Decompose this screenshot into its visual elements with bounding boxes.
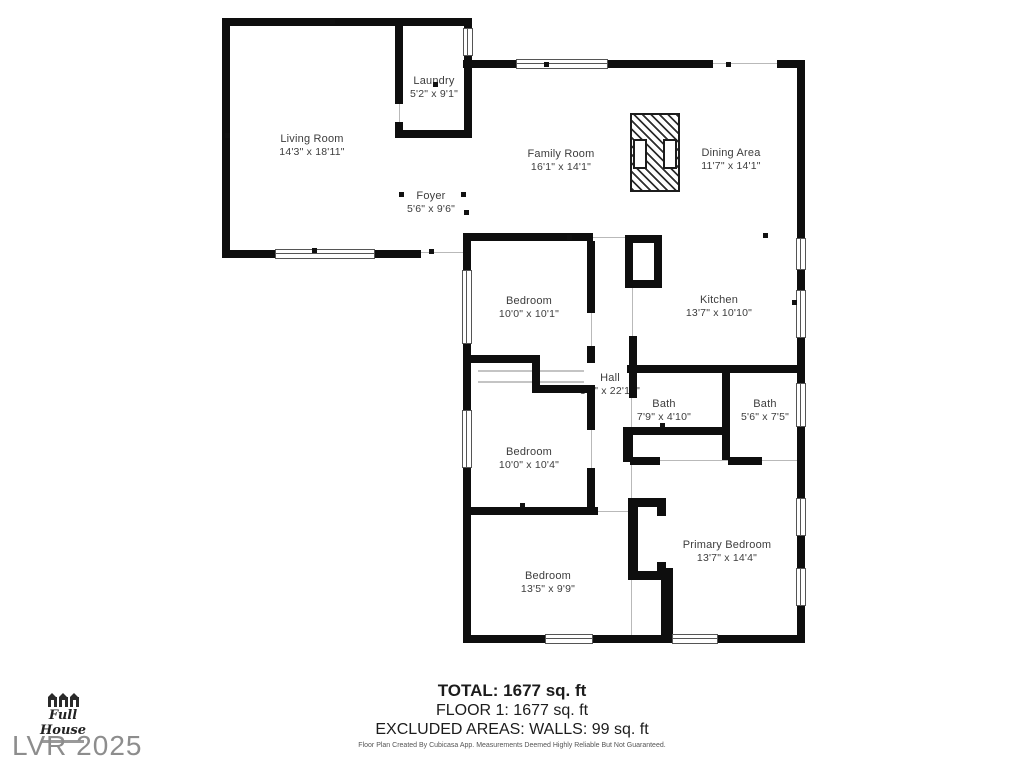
wall: [797, 425, 805, 500]
room-dims: 5'6" x 7'5": [741, 411, 789, 424]
opening-line-bath2-door: [762, 460, 797, 461]
opening-line-front-door: [421, 252, 463, 253]
total-area-text: TOTAL: 1677 sq. ft: [0, 681, 1024, 701]
wall: [630, 427, 723, 435]
room-name: Family Room: [528, 148, 595, 161]
room-label-dining-area: Dining Area 11'7" x 14'1": [701, 147, 760, 173]
closet-shelf-line: [478, 381, 584, 383]
wall: [627, 365, 805, 373]
wall: [630, 457, 660, 465]
house-icon: [70, 697, 79, 707]
wall: [532, 385, 593, 393]
door-tick: [429, 249, 434, 254]
door-tick: [399, 192, 404, 197]
window: [796, 383, 806, 427]
room-label-laundry: Laundry 5'2" x 9'1": [410, 75, 458, 101]
summary-block: TOTAL: 1677 sq. ft FLOOR 1: 1677 sq. ft …: [0, 681, 1024, 739]
door-tick: [225, 133, 230, 138]
wall: [373, 250, 421, 258]
opening-line-bedroom1-door: [591, 313, 592, 348]
wall: [797, 336, 805, 385]
wall: [463, 342, 471, 412]
floor-plan-canvas: Living Room 14'3" x 18'11" Laundry 5'2" …: [0, 0, 1024, 768]
room-name: Bath: [637, 398, 691, 411]
watermark-text: LVR 2025: [12, 730, 142, 762]
door-tick: [330, 19, 335, 24]
wall: [222, 18, 230, 258]
fireplace-symbol: [630, 113, 680, 192]
door-tick: [567, 235, 572, 240]
wall: [716, 635, 805, 643]
fireplace-notch: [663, 139, 677, 169]
room-dims: 13'5" x 9'9": [521, 583, 575, 596]
wall: [722, 368, 730, 460]
closet-shelf-line: [478, 370, 584, 372]
door-tick: [544, 62, 549, 67]
room-dims: 5'2" x 9'1": [410, 88, 458, 101]
door-tick: [433, 82, 438, 87]
excluded-area-text: EXCLUDED AREAS: WALLS: 99 sq. ft: [0, 721, 1024, 739]
opening-line-kitchen-door: [632, 288, 633, 336]
window: [463, 28, 473, 56]
window: [796, 568, 806, 606]
room-label-bedroom-3: Bedroom 13'5" x 9'9": [521, 570, 575, 596]
door-tick: [464, 210, 469, 215]
opening-line-hall-south2: [631, 580, 632, 635]
room-dims: 10'0" x 10'4": [499, 459, 559, 472]
room-name: Foyer: [407, 190, 455, 203]
house-icon: [59, 697, 68, 707]
room-dims: 13'7" x 14'4": [683, 552, 772, 565]
door-tick: [726, 62, 731, 67]
opening-line-hall-south: [631, 460, 632, 498]
door-tick: [763, 233, 768, 238]
floor-area-text: FLOOR 1: 1677 sq. ft: [0, 702, 1024, 720]
room-dims: 16'1" x 14'1": [528, 161, 595, 174]
wall: [463, 355, 540, 363]
wall: [587, 241, 595, 313]
room-name: Bedroom: [521, 570, 575, 583]
window: [796, 290, 806, 338]
houses-icon: [28, 694, 98, 707]
window: [672, 634, 718, 644]
wall: [463, 507, 598, 515]
opening-line-primary-entry: [660, 460, 728, 461]
window: [796, 498, 806, 536]
room-dims: 10'0" x 10'1": [499, 308, 559, 321]
window: [462, 270, 472, 344]
disclaimer-text: Floor Plan Created By Cubicasa App. Meas…: [0, 742, 1024, 749]
opening-line-bedroom3-door: [598, 511, 628, 512]
fireplace-notch: [633, 139, 647, 169]
wall: [222, 18, 403, 26]
door-tick: [520, 503, 525, 508]
wall: [728, 457, 762, 465]
room-dims: 13'7" x 10'10": [686, 307, 752, 320]
wall: [797, 268, 805, 292]
door-tick: [461, 192, 466, 197]
room-dims: 14'3" x 18'11": [279, 146, 344, 159]
room-name: Living Room: [279, 133, 344, 146]
room-label-kitchen: Kitchen 13'7" x 10'10": [686, 294, 752, 320]
window: [545, 634, 593, 644]
window: [462, 410, 472, 468]
wall: [625, 280, 662, 288]
room-dims: 5'6" x 9'6": [407, 203, 455, 216]
room-label-foyer: Foyer 5'6" x 9'6": [407, 190, 455, 216]
wall: [463, 635, 547, 643]
wall: [395, 130, 472, 138]
wall: [661, 568, 673, 643]
wall: [395, 18, 403, 104]
door-tick: [660, 423, 665, 428]
room-name: Primary Bedroom: [683, 539, 772, 552]
room-dims: 11'7" x 14'1": [701, 160, 760, 173]
wall: [797, 534, 805, 570]
room-name: Kitchen: [686, 294, 752, 307]
room-label-family-room: Family Room 16'1" x 14'1": [528, 148, 595, 174]
wall: [587, 346, 595, 363]
wall: [657, 498, 666, 516]
door-tick: [792, 300, 797, 305]
room-name: Bedroom: [499, 446, 559, 459]
room-label-primary-bedroom: Primary Bedroom 13'7" x 14'4": [683, 539, 772, 565]
wall: [463, 466, 471, 643]
opening-line-bedroom2-door: [591, 430, 592, 468]
room-name: Bedroom: [499, 295, 559, 308]
wall: [628, 498, 638, 580]
wall: [797, 60, 805, 240]
wall: [222, 250, 277, 258]
opening-line-bath1-door: [631, 398, 632, 427]
opening-line-patio: [713, 63, 777, 64]
room-label-bath-2: Bath 5'6" x 7'5": [741, 398, 789, 424]
opening-line-hall-top: [593, 237, 625, 238]
room-name: Bath: [741, 398, 789, 411]
wall: [463, 60, 518, 68]
room-label-bedroom-2: Bedroom 10'0" x 10'4": [499, 446, 559, 472]
door-tick: [312, 248, 317, 253]
room-label-bath-1: Bath 7'9" x 4'10": [637, 398, 691, 424]
wall: [606, 60, 713, 68]
window: [516, 59, 608, 69]
room-name: Dining Area: [701, 147, 760, 160]
window: [275, 249, 375, 259]
room-label-bedroom-1: Bedroom 10'0" x 10'1": [499, 295, 559, 321]
house-icon: [48, 697, 57, 707]
window: [796, 238, 806, 270]
wall: [463, 233, 593, 241]
room-label-living-room: Living Room 14'3" x 18'11": [279, 133, 344, 159]
